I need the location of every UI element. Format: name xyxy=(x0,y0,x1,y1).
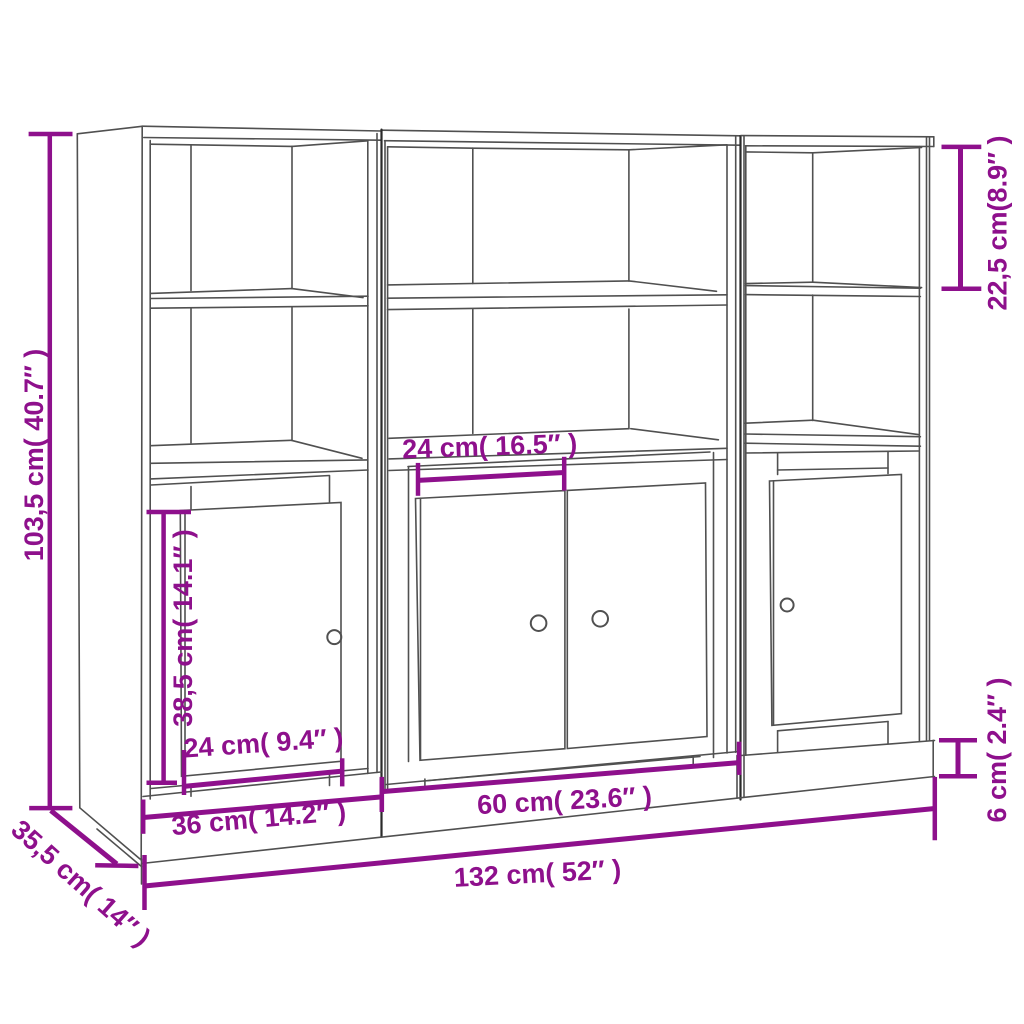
svg-text:6 cm( 2.4″ ): 6 cm( 2.4″ ) xyxy=(982,678,1012,823)
svg-text:38,5 cm( 14.1″ ): 38,5 cm( 14.1″ ) xyxy=(168,529,198,727)
svg-text:22,5 cm(8.9″ ): 22,5 cm(8.9″ ) xyxy=(983,135,1013,310)
svg-text:24 cm( 16.5″ ): 24 cm( 16.5″ ) xyxy=(402,428,578,464)
svg-text:103,5 cm( 40.7″ ): 103,5 cm( 40.7″ ) xyxy=(19,349,49,562)
